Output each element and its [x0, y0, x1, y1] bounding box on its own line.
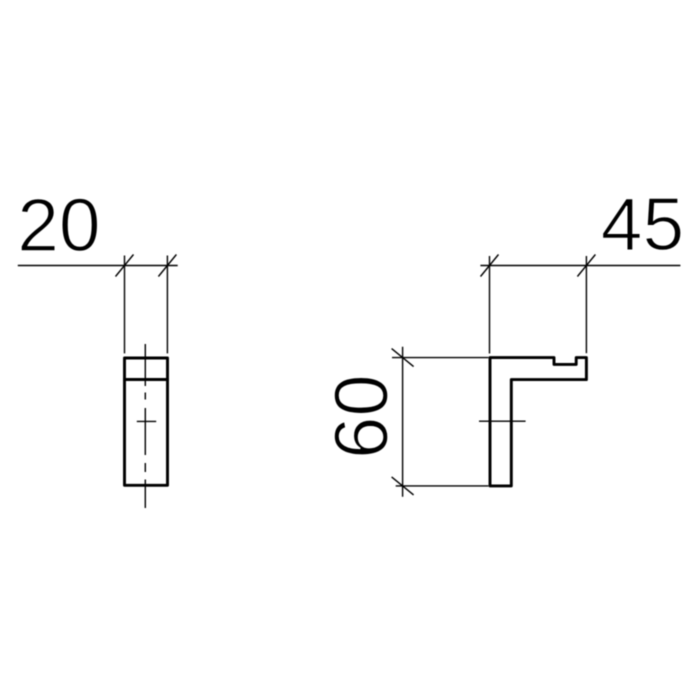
svg-text:45: 45 — [601, 182, 684, 266]
svg-text:60: 60 — [319, 374, 404, 459]
svg-text:20: 20 — [17, 183, 100, 267]
